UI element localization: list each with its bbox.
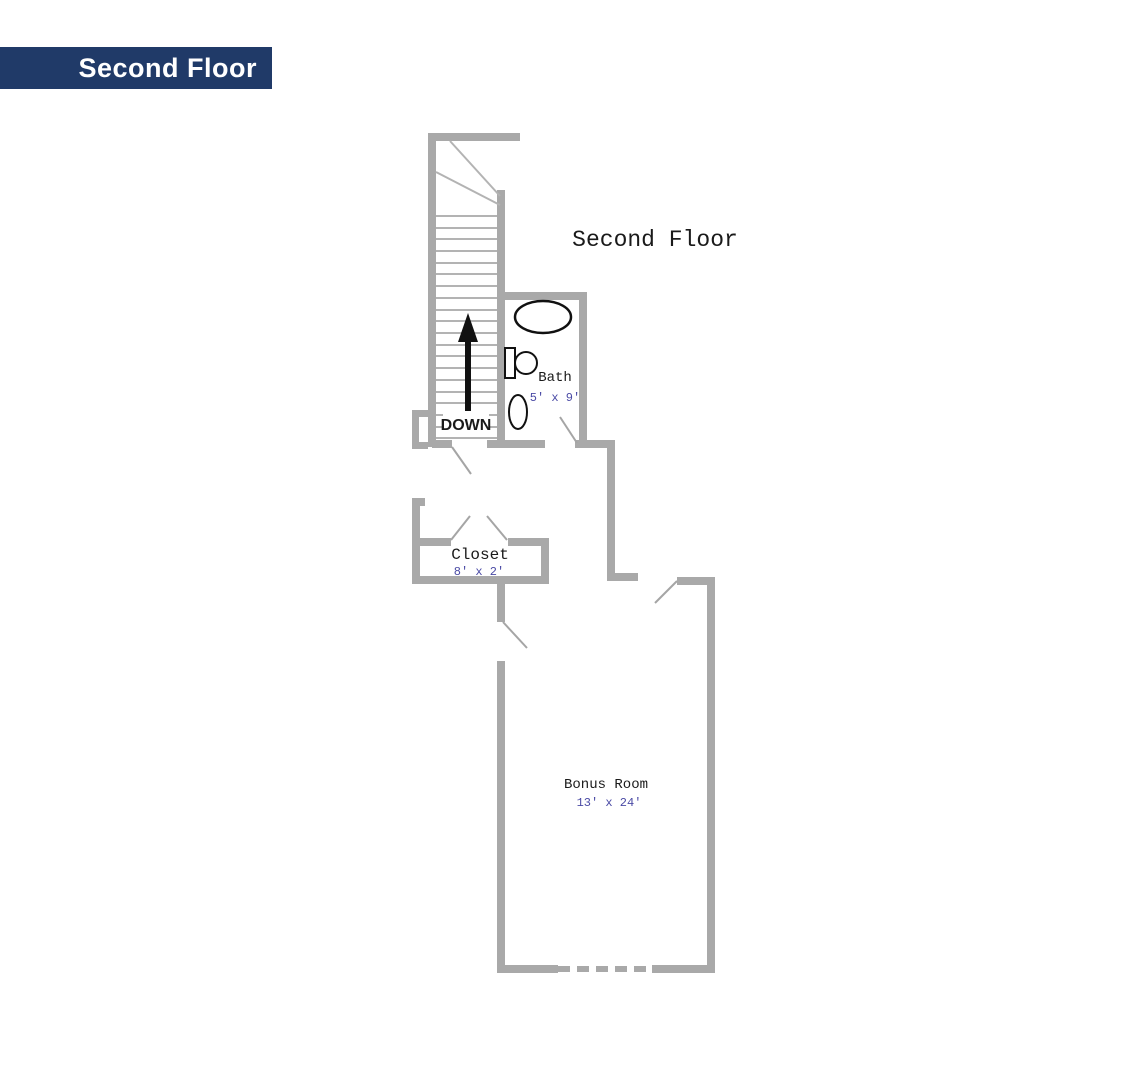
wall-bath-top — [505, 292, 587, 300]
down-arrow-head — [458, 313, 478, 342]
wall-east-horizontal — [607, 573, 638, 581]
plan-title: Second Floor — [572, 227, 738, 253]
wall-east-vertical — [607, 440, 615, 581]
wall-stair-top — [428, 133, 520, 141]
wall-hall-bottom — [432, 440, 452, 448]
wall-stair-right — [497, 190, 505, 447]
closet-room-label: Closet — [451, 546, 509, 564]
stairs-down-label: DOWN — [441, 417, 492, 434]
wall-closet-top-left — [420, 538, 451, 546]
down-arrow-shaft — [465, 337, 471, 411]
wall-bonus-left-stub — [497, 583, 505, 622]
tub-icon — [515, 301, 571, 333]
door-swing-closet-right — [487, 516, 507, 540]
door-swing-bonus-north — [655, 581, 677, 603]
bath-room-label: Bath — [538, 370, 572, 386]
down-arrow-icon — [458, 313, 478, 411]
wall-closet-left — [412, 498, 420, 583]
floor-plan: Second Floor DOWN Bath 5' x 9' Closet 8'… — [0, 0, 1126, 1076]
toilet-bowl-icon — [515, 352, 537, 374]
toilet-tank-icon — [505, 348, 515, 378]
door-swing-bonus-west — [503, 622, 527, 648]
sink-icon — [509, 395, 527, 429]
door-swing-bath — [560, 417, 577, 443]
wall-bonus-right — [707, 577, 715, 973]
wall-niche-bottom — [412, 442, 428, 449]
wall-bonus-bottom-right — [652, 965, 715, 973]
closet-room-dims: 8' x 2' — [454, 565, 504, 579]
bath-room-dims: 5' x 9' — [530, 391, 580, 405]
door-swing-hall — [452, 447, 471, 474]
wall-bonus-left — [497, 661, 505, 973]
bonus-room-dims: 13' x 24' — [577, 796, 642, 810]
wall-stair-left — [428, 133, 436, 447]
wall-bath-bottom-left — [487, 440, 545, 448]
bonus-room-label: Bonus Room — [564, 777, 648, 793]
bath-fixtures — [505, 301, 571, 429]
door-swing-closet-left — [451, 516, 470, 540]
wall-bath-right — [579, 292, 587, 448]
door-swings — [451, 417, 677, 648]
wall-bonus-bottom-left — [497, 965, 558, 973]
stair-winder-line — [436, 172, 500, 205]
wall-closet-left-cap — [412, 498, 425, 506]
stair-winder-line — [450, 141, 500, 196]
